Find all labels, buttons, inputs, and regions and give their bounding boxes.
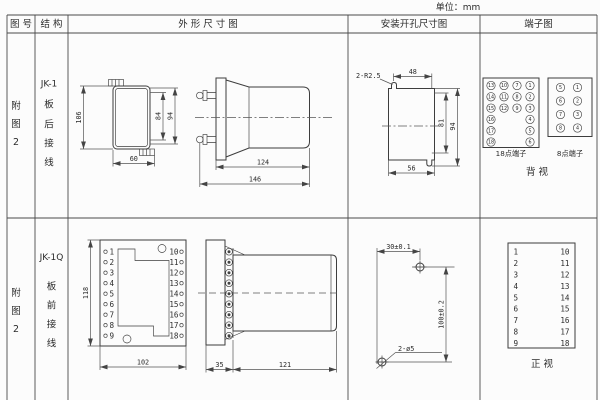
list-number: 8 — [514, 328, 519, 337]
dim-label: 60 — [130, 155, 138, 163]
list-number: 12 — [560, 270, 569, 279]
structure-char: 线 — [44, 157, 54, 169]
row-jk1-structure: JK-1 板 后 接 线 — [40, 80, 58, 169]
terminal-number: 8 — [515, 95, 518, 101]
terminal-box-8 — [548, 78, 592, 137]
dim-top-48: 48 — [394, 68, 432, 89]
header-mounting: 安装开孔尺寸图 — [381, 18, 448, 30]
dim-label: 100±0.2 — [438, 300, 446, 329]
structure-char: 接 — [44, 138, 54, 150]
terminal-number: 1 — [576, 85, 579, 91]
list-number: 6 — [514, 305, 519, 314]
dim-width-102: 102 — [100, 346, 186, 370]
pin-number: 2 — [110, 258, 115, 267]
dim-body-124: 124 — [216, 148, 310, 170]
hole-bottom: 2-ø5 — [376, 345, 453, 369]
pin-number: 16 — [169, 311, 179, 320]
list-number: 18 — [560, 339, 570, 348]
pin-number: 14 — [169, 290, 179, 299]
terminal-number: 17 — [488, 128, 494, 134]
terminal-number: 3 — [576, 112, 579, 118]
fig-char: 图 — [11, 119, 21, 130]
terminal-number: 9 — [515, 106, 518, 112]
dim-height-106: 106 — [75, 86, 113, 149]
pin-number: 3 — [110, 269, 115, 278]
terminal-number: 10 — [501, 83, 507, 89]
terminal-numbers-8: 5 6 7 8 1 2 3 4 — [559, 85, 579, 132]
view-label-front: 正 视 — [531, 358, 554, 370]
front-pins-right: 10 11 12 13 14 15 16 17 18 — [169, 248, 183, 341]
jk1-side-view: 124 146 — [195, 78, 332, 187]
jk1-front-view: 106 84 94 60 — [75, 80, 178, 167]
dim-label: 146 — [249, 176, 261, 184]
connector-profile — [118, 249, 169, 336]
terminal-number: 2 — [528, 95, 531, 101]
terminal-number: 6 — [559, 99, 562, 105]
terminal-number: 8 — [559, 126, 562, 132]
mounting-hole-top — [158, 245, 166, 253]
fig-char: 附 — [11, 100, 21, 112]
hole-diameter-label: 2-ø5 — [398, 345, 414, 353]
jk1q-side-view: 35 121 — [198, 240, 341, 373]
list-number: 11 — [560, 259, 570, 268]
terminal-18-label: 18点端子 — [496, 149, 527, 158]
terminal-bumps — [226, 248, 233, 339]
mounting-hole-bottom — [123, 335, 131, 343]
header-fig-no: 图 号 — [10, 19, 32, 30]
dim-label: 94 — [167, 112, 175, 120]
notch-label: 2-R2.5 — [356, 72, 381, 80]
terminal-number: 14 — [488, 95, 494, 101]
terminal-list-left: 1 2 3 4 5 6 7 8 9 — [514, 248, 519, 349]
list-number: 4 — [514, 282, 519, 291]
table-header: 图 号 结 构 外 形 尺 寸 图 安装开孔尺寸图 端子图 — [10, 18, 553, 30]
dim-label: 48 — [409, 68, 417, 76]
front-plate — [206, 240, 225, 345]
pin-number: 9 — [110, 332, 115, 341]
unit-label: 单位：mm — [436, 1, 481, 13]
list-number: 7 — [514, 316, 519, 325]
jk1q-terminal-list: 1 2 3 4 5 6 7 8 9 10 11 12 13 14 15 16 1… — [508, 243, 575, 348]
model-label: JK-1Q — [39, 253, 64, 263]
terminal-circles-18 — [487, 81, 534, 146]
pin-number: 1 — [110, 248, 115, 257]
dim-label: 30±0.1 — [386, 243, 411, 251]
list-number: 15 — [560, 305, 569, 314]
terminal-number: 4 — [576, 126, 579, 132]
header-outline: 外 形 尺 寸 图 — [178, 18, 238, 30]
list-number: 13 — [560, 282, 569, 291]
terminal-block-8: 5 6 7 8 1 2 3 4 8点端子 — [548, 78, 592, 158]
terminal-number: 12 — [501, 106, 507, 112]
notch-callout: 2-R2.5 — [356, 72, 393, 85]
jk1q-mounting-holes: 30±0.1 100±0.2 2-ø5 — [376, 243, 455, 369]
terminal-8-label: 8点端子 — [557, 149, 583, 158]
row-jk1q-fig-no: 附 图 2 — [11, 287, 21, 335]
header-structure: 结 构 — [40, 18, 62, 30]
dim-label: 81 — [438, 119, 446, 127]
dim-label: 56 — [407, 165, 415, 173]
dim-label: 106 — [75, 111, 83, 123]
terminal-block-18: 13 14 15 16 17 18 10 11 12 7 8 9 1 2 3 4… — [483, 78, 539, 158]
pin-number: 11 — [169, 258, 179, 267]
terminal-stud-lower — [197, 135, 217, 145]
list-number: 17 — [560, 328, 569, 337]
dim-label: 118 — [82, 287, 90, 299]
structure-char: 线 — [47, 338, 57, 350]
terminal-number: 6 — [528, 140, 531, 146]
terminal-stud-upper — [197, 91, 217, 101]
terminal-numbers-18: 13 14 15 16 17 18 10 11 12 7 8 9 1 2 3 4… — [488, 83, 532, 146]
relay-case-outline — [113, 86, 150, 149]
view-label-rear: 背 视 — [526, 166, 549, 178]
list-number: 2 — [514, 259, 519, 268]
technical-drawing-sheet: 单位：mm 图 号 结 构 外 形 尺 寸 图 安装开孔尺寸图 端子图 附 图 … — [0, 0, 600, 400]
dim-bottom-56: 56 — [389, 160, 435, 176]
list-number: 3 — [514, 270, 519, 279]
relay-body-outline — [226, 80, 310, 157]
fig-char: 2 — [13, 137, 19, 148]
bottom-terminal-tab — [140, 149, 155, 156]
fig-char: 2 — [13, 324, 19, 335]
row-jk1-fig-no: 附 图 2 — [11, 100, 21, 148]
dim-hole-spacing-30: 30±0.1 — [377, 243, 420, 260]
relay-case-inner — [116, 89, 148, 147]
header-terminal: 端子图 — [524, 18, 553, 30]
dim-label: 84 — [155, 112, 163, 120]
dim-flange-35: 35 — [206, 331, 337, 373]
front-pins-left: 1 2 3 4 5 6 7 8 9 — [104, 248, 115, 341]
structure-char: 后 — [44, 120, 54, 131]
hole-top — [412, 261, 455, 274]
pin-number: 12 — [169, 269, 178, 278]
terminal-number: 3 — [528, 106, 531, 112]
terminal-number: 7 — [515, 83, 518, 89]
dim-stud-span-84: 84 — [150, 93, 166, 141]
dim-label: 102 — [137, 359, 149, 367]
pin-number: 8 — [110, 321, 115, 330]
datasheet-page: 单位：mm 图 号 结 构 外 形 尺 寸 图 安装开孔尺寸图 端子图 附 图 … — [0, 0, 600, 400]
list-number: 10 — [560, 248, 570, 257]
dim-body-121: 121 — [233, 361, 337, 370]
dim-width-60: 60 — [113, 150, 155, 167]
terminal-number: 5 — [528, 128, 531, 134]
terminal-list-right: 10 11 12 13 14 15 16 17 18 — [560, 248, 570, 349]
list-number: 14 — [560, 293, 570, 302]
list-number: 1 — [514, 248, 519, 257]
dim-hole-spacing-100: 100±0.2 — [438, 267, 447, 362]
terminal-number: 11 — [501, 95, 507, 101]
mounting-flange — [216, 78, 226, 160]
pin-number: 18 — [169, 332, 179, 341]
dim-height-118: 118 — [82, 240, 100, 346]
dim-label: 94 — [449, 122, 457, 130]
terminal-number: 15 — [488, 106, 494, 112]
list-number: 5 — [514, 293, 519, 302]
top-terminal-tab — [109, 80, 124, 87]
terminal-number: 5 — [559, 85, 562, 91]
terminal-number: 16 — [488, 117, 494, 123]
dim-label: 35 — [215, 361, 223, 369]
pin-number: 7 — [110, 311, 115, 320]
list-number: 9 — [514, 339, 519, 348]
structure-char: 板 — [44, 99, 54, 111]
pin-number: 15 — [169, 300, 178, 309]
structure-char: 接 — [47, 319, 57, 331]
pin-number: 6 — [110, 300, 115, 309]
jk1-mounting-cutout: 2-R2.5 48 81 94 56 — [356, 68, 460, 176]
cutout-outline — [389, 83, 435, 167]
fig-char: 图 — [11, 306, 21, 317]
dim-label: 121 — [279, 361, 291, 369]
pin-number: 4 — [110, 279, 115, 288]
terminal-number: 2 — [576, 99, 579, 105]
dim-label: 124 — [257, 159, 269, 167]
pin-number: 17 — [169, 321, 178, 330]
fig-char: 附 — [11, 287, 21, 299]
pin-number: 13 — [169, 279, 178, 288]
terminal-number: 4 — [528, 117, 531, 123]
list-number: 16 — [560, 316, 570, 325]
row-jk1q-structure: JK-1Q 板 前 接 线 — [39, 253, 64, 350]
terminal-number: 7 — [559, 112, 562, 118]
pin-number: 5 — [110, 290, 115, 299]
terminal-number: 18 — [488, 140, 494, 146]
model-label: JK-1 — [40, 80, 58, 90]
terminal-number: 1 — [528, 83, 531, 89]
terminal-number: 13 — [488, 83, 494, 89]
jk1q-front-view: 1 2 3 4 5 6 7 8 9 10 11 12 13 14 15 16 1… — [82, 240, 186, 370]
structure-char: 板 — [47, 281, 57, 293]
structure-char: 前 — [47, 300, 57, 312]
pin-number: 10 — [169, 248, 179, 257]
